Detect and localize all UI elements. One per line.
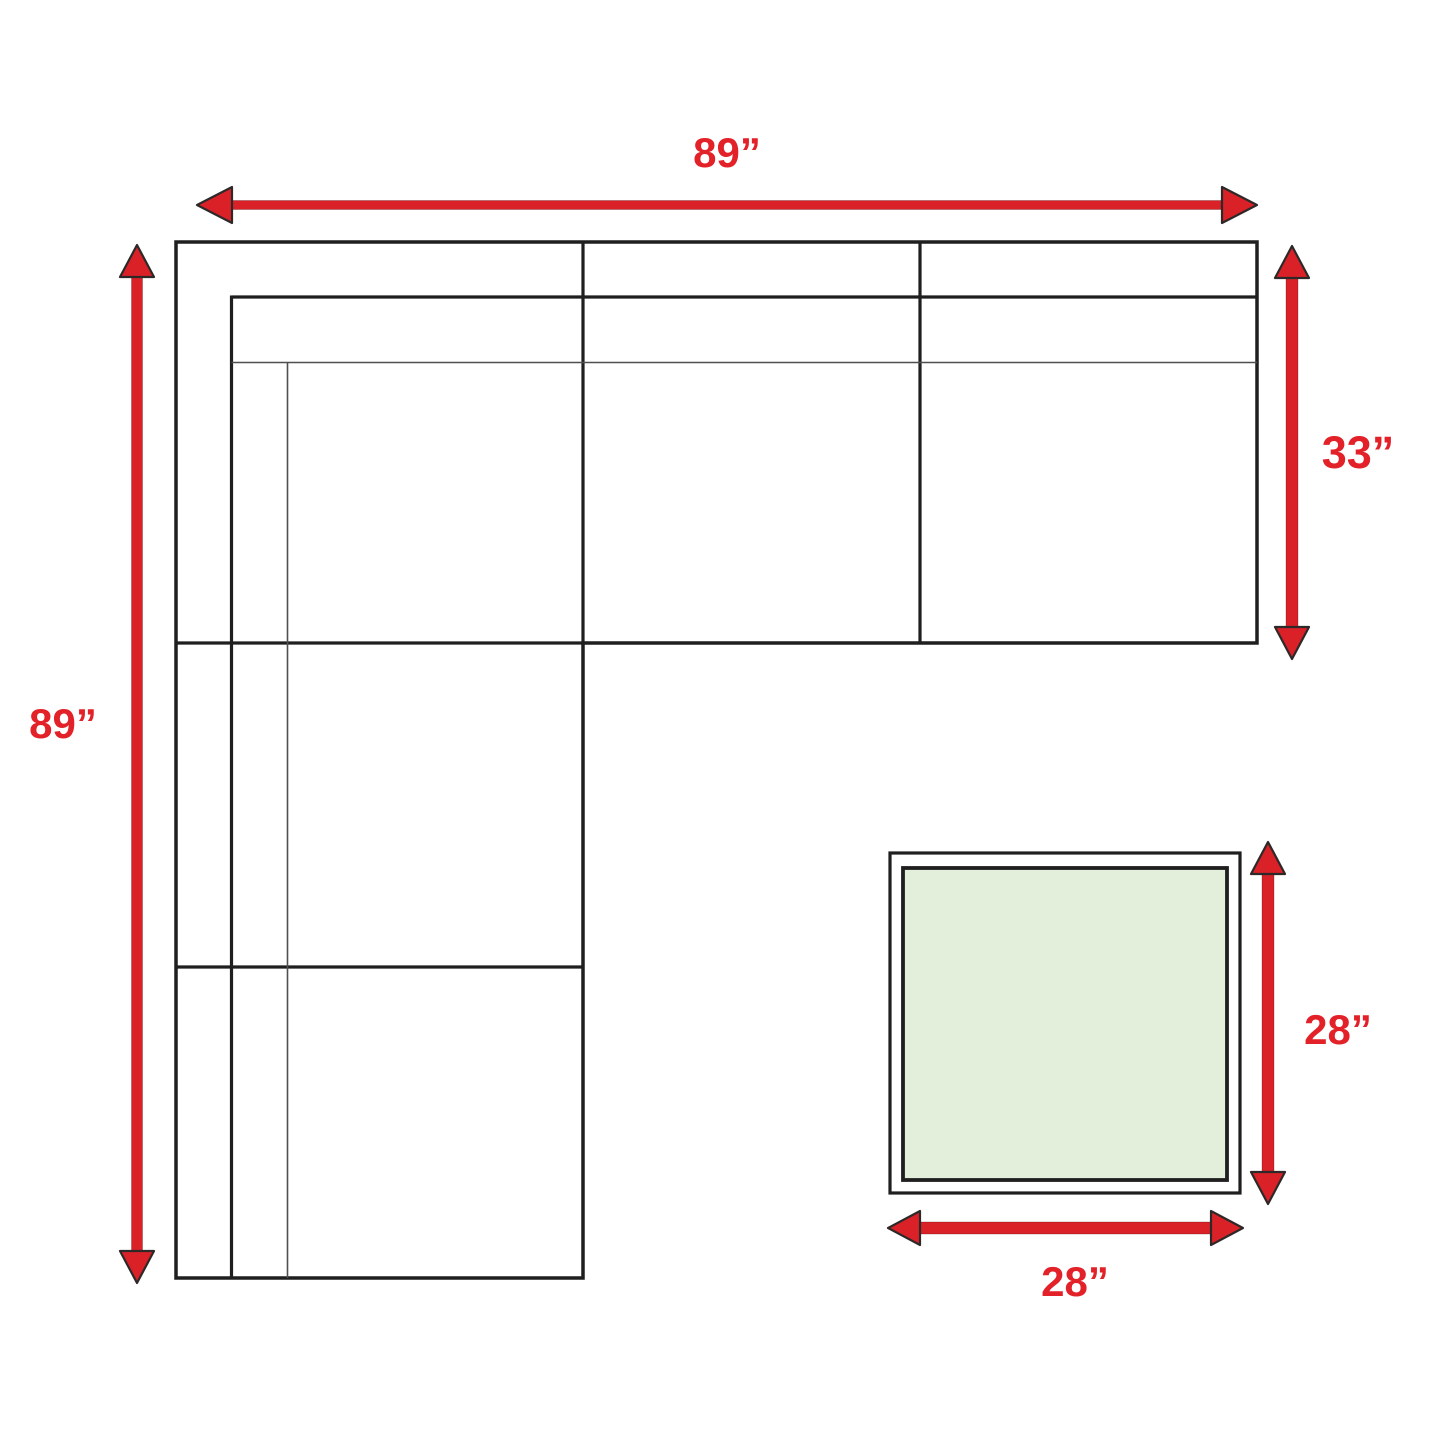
sofa-height-arrow-shaft — [132, 272, 143, 1256]
ottoman-width-label: 28” — [1041, 1258, 1109, 1305]
sofa-depth-label: 33” — [1322, 427, 1395, 478]
ottoman-width-arrow — [888, 1211, 1243, 1245]
sofa-height-arrow — [120, 245, 154, 1283]
sofa-height-arrow-bottom-head — [120, 1251, 154, 1283]
sofa-depth-arrow — [1275, 246, 1309, 659]
ottoman-height-arrow — [1251, 842, 1285, 1204]
ottoman-top-surface — [903, 868, 1227, 1180]
sofa-depth-arrow-top-head — [1275, 246, 1309, 278]
sofa-width-label: 89” — [693, 129, 761, 176]
ottoman-height-label: 28” — [1304, 1006, 1372, 1053]
diagram-canvas: 89” 89” 33” 28” 28” — [0, 0, 1445, 1445]
ottoman-width-arrow-left-head — [888, 1211, 920, 1245]
sofa-height-label: 89” — [29, 700, 97, 747]
sofa-height-arrow-top-head — [120, 245, 154, 277]
sofa-depth-arrow-bottom-head — [1275, 627, 1309, 659]
sofa-width-arrow — [197, 187, 1257, 223]
ottoman-width-arrow-shaft — [916, 1222, 1215, 1234]
sofa-width-arrow-left-head — [197, 187, 232, 223]
ottoman-height-arrow-shaft — [1262, 870, 1274, 1176]
sofa-width-arrow-right-head — [1222, 187, 1257, 223]
sofa-depth-arrow-shaft — [1286, 274, 1298, 631]
ottoman-width-arrow-right-head — [1211, 1211, 1243, 1245]
sofa-dimension-diagram: 89” 89” 33” 28” 28” — [0, 0, 1445, 1445]
ottoman-height-arrow-top-head — [1251, 842, 1285, 874]
sofa-width-arrow-shaft — [224, 201, 1230, 210]
ottoman-height-arrow-bottom-head — [1251, 1172, 1285, 1204]
